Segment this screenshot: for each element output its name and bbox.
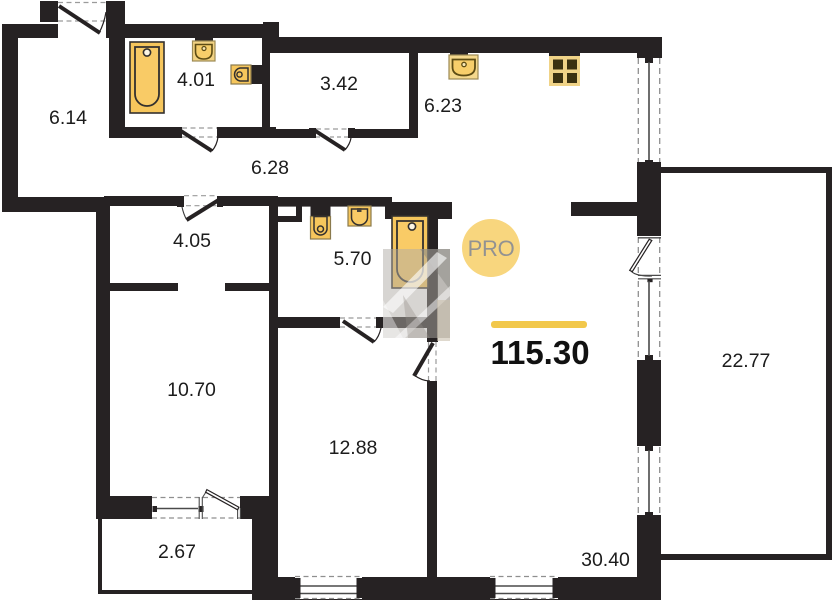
svg-text:4.05: 4.05 <box>173 230 211 252</box>
svg-text:12.88: 12.88 <box>329 437 378 459</box>
svg-text:6.14: 6.14 <box>49 107 87 129</box>
svg-text:22.77: 22.77 <box>722 350 771 372</box>
svg-text:6.23: 6.23 <box>424 95 462 117</box>
svg-text:115.30: 115.30 <box>490 334 589 371</box>
svg-text:4.01: 4.01 <box>177 69 215 91</box>
svg-text:2.67: 2.67 <box>158 541 196 563</box>
svg-text:6.28: 6.28 <box>251 157 289 179</box>
svg-text:3.42: 3.42 <box>320 73 358 95</box>
svg-text:30.40: 30.40 <box>581 549 630 571</box>
svg-text:PRO: PRO <box>468 236 515 261</box>
svg-text:5.70: 5.70 <box>334 248 372 270</box>
svg-text:10.70: 10.70 <box>167 379 216 401</box>
